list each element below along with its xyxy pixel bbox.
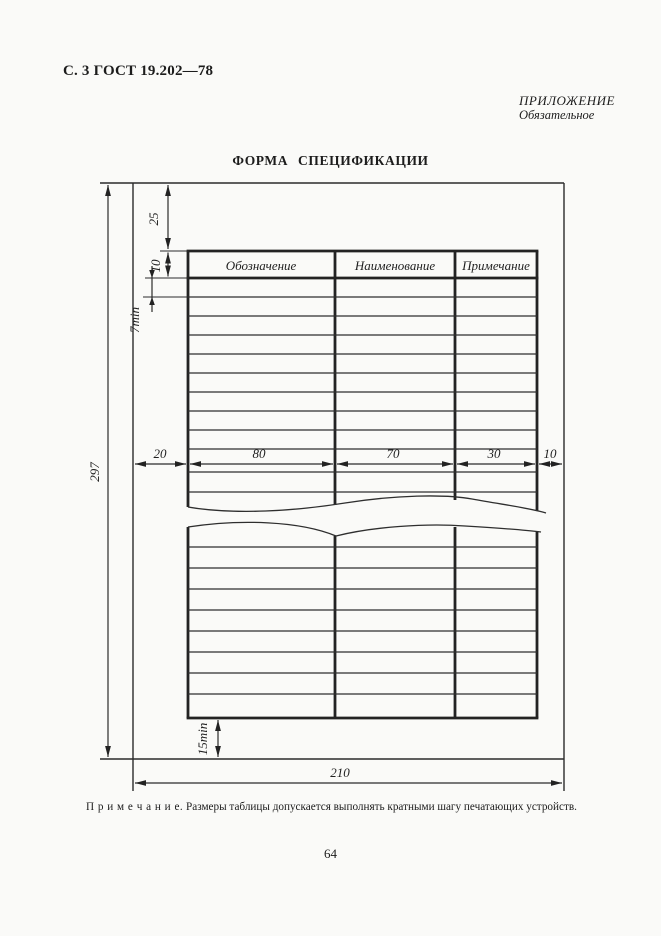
spec-table-rows-lower bbox=[188, 547, 537, 694]
dim-bottom-margin: 15min bbox=[195, 720, 218, 757]
footnote-text: Размеры таблицы допускается выполнять кр… bbox=[186, 801, 577, 813]
sheet-outline bbox=[100, 183, 564, 791]
dim-sheet-height: 297 bbox=[87, 185, 108, 757]
dim-row-height: 7min bbox=[127, 266, 188, 333]
table-column-headers: Обозначение Наименование Примечание bbox=[226, 258, 530, 273]
footnote: П р и м е ч а н и е. Размеры таблицы доп… bbox=[86, 801, 577, 813]
dim-label-80: 80 bbox=[253, 446, 267, 461]
dim-label-15min: 15min bbox=[195, 723, 210, 756]
dim-label-297: 297 bbox=[87, 462, 102, 482]
spec-table-frame bbox=[187, 251, 539, 718]
column-header-designation: Обозначение bbox=[226, 258, 297, 273]
page-number: 64 bbox=[0, 846, 661, 862]
dim-label-20: 20 bbox=[154, 446, 168, 461]
dim-label-210: 210 bbox=[330, 765, 350, 780]
column-header-name: Наименование bbox=[354, 258, 435, 273]
dim-label-10-right: 10 bbox=[544, 446, 558, 461]
dim-label-30: 30 bbox=[487, 446, 502, 461]
dim-label-7min: 7min bbox=[127, 307, 142, 333]
footnote-label: П р и м е ч а н и е. bbox=[86, 801, 183, 813]
dim-column-width-labels: 20 80 70 30 10 bbox=[154, 446, 558, 461]
specification-form-drawing: Обозначение Наименование Примечание 297 … bbox=[0, 0, 661, 936]
dim-sheet-width: 210 bbox=[135, 765, 562, 783]
dim-label-70: 70 bbox=[387, 446, 401, 461]
dim-top-margin: 25 bbox=[146, 185, 188, 251]
dim-label-25: 25 bbox=[146, 212, 161, 226]
table-break-waves bbox=[188, 496, 546, 536]
column-header-note: Примечание bbox=[461, 258, 530, 273]
spec-table-rows-upper bbox=[188, 297, 537, 492]
